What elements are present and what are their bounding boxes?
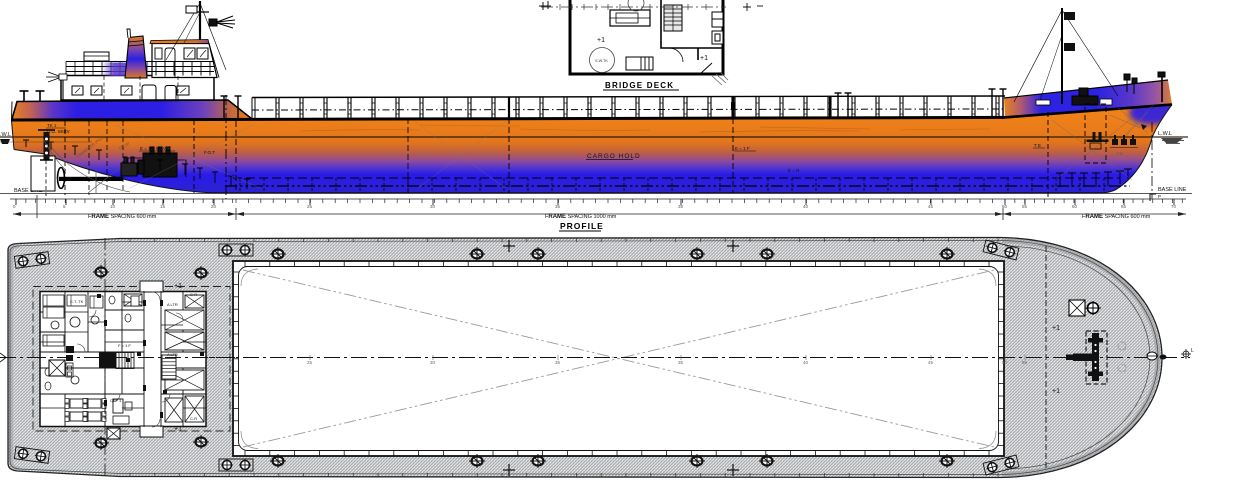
- svg-text:F = 1 F: F = 1 F: [118, 343, 131, 348]
- svg-text:+1: +1: [597, 37, 605, 44]
- svg-text:10: 10: [110, 204, 116, 209]
- svg-text:L: L: [1191, 348, 1194, 354]
- svg-text:45: 45: [928, 204, 934, 209]
- svg-text:E = 1 F 96kW: E = 1 F 96kW: [140, 146, 168, 151]
- svg-text:35: 35: [555, 204, 561, 209]
- svg-text:1°D: 1°D: [1116, 151, 1123, 156]
- svg-text:L.W.L: L.W.L: [1158, 131, 1172, 137]
- svg-text:BASE LINE: BASE LINE: [1158, 187, 1187, 193]
- svg-text:35: 35: [555, 360, 561, 365]
- svg-text:30: 30: [430, 204, 436, 209]
- svg-text:P: P: [1158, 194, 1161, 199]
- svg-text:D.O. SERV: D.O. SERV: [47, 129, 70, 134]
- svg-text:20: 20: [211, 204, 217, 209]
- svg-text:E = N: E = N: [788, 168, 799, 173]
- svg-text:T E: T E: [1034, 143, 1041, 148]
- svg-text:25: 25: [307, 360, 313, 365]
- svg-text:CARGO HOLD: CARGO HOLD: [587, 153, 641, 160]
- svg-text:C-R: C-R: [190, 292, 197, 297]
- svg-text:PROFILE: PROFILE: [560, 221, 604, 231]
- svg-text:55: 55: [1022, 360, 1028, 365]
- svg-text:+1: +1: [1052, 388, 1060, 395]
- svg-text:25: 25: [307, 204, 313, 209]
- svg-text:+1: +1: [700, 55, 708, 62]
- svg-text:50: 50: [1002, 360, 1008, 365]
- svg-text:45: 45: [928, 360, 934, 365]
- svg-text:OFF 1: OFF 1: [110, 398, 122, 403]
- svg-text:30: 30: [430, 360, 436, 365]
- svg-text:40: 40: [803, 360, 809, 365]
- svg-text:+1: +1: [174, 283, 182, 290]
- svg-text:+1: +1: [174, 426, 182, 433]
- svg-text:40: 40: [803, 204, 809, 209]
- svg-text:15: 15: [160, 204, 166, 209]
- svg-text:65: 65: [1121, 204, 1127, 209]
- svg-text:F.O.T: F.O.T: [204, 150, 215, 155]
- svg-text:E = 1 F: E = 1 F: [735, 146, 750, 151]
- svg-text:FRAME SPACING 600 mm: FRAME SPACING 600 mm: [88, 214, 157, 220]
- svg-text:35: 35: [678, 360, 684, 365]
- svg-text:S.W.TK: S.W.TK: [595, 59, 608, 63]
- svg-text:70: 70: [1171, 204, 1177, 209]
- svg-text:60: 60: [1072, 204, 1078, 209]
- svg-text:35: 35: [678, 204, 684, 209]
- svg-text:A LTR: A LTR: [167, 352, 178, 357]
- svg-text:FRAME SPACING 600 mm: FRAME SPACING 600 mm: [1082, 214, 1151, 220]
- svg-text:FRAME SPACING 1000 mm: FRAME SPACING 1000 mm: [545, 214, 617, 220]
- svg-text:C-R: C-R: [190, 416, 197, 421]
- svg-text:.W.L: .W.L: [0, 132, 11, 138]
- svg-text:A LTR: A LTR: [167, 302, 178, 307]
- svg-text:BRIDGE DECK: BRIDGE DECK: [605, 81, 674, 90]
- svg-text:C.T. TK: C.T. TK: [70, 299, 84, 304]
- svg-text:+1: +1: [1052, 325, 1060, 332]
- svg-text:TK 1: TK 1: [47, 123, 57, 128]
- svg-text:55: 55: [1022, 204, 1028, 209]
